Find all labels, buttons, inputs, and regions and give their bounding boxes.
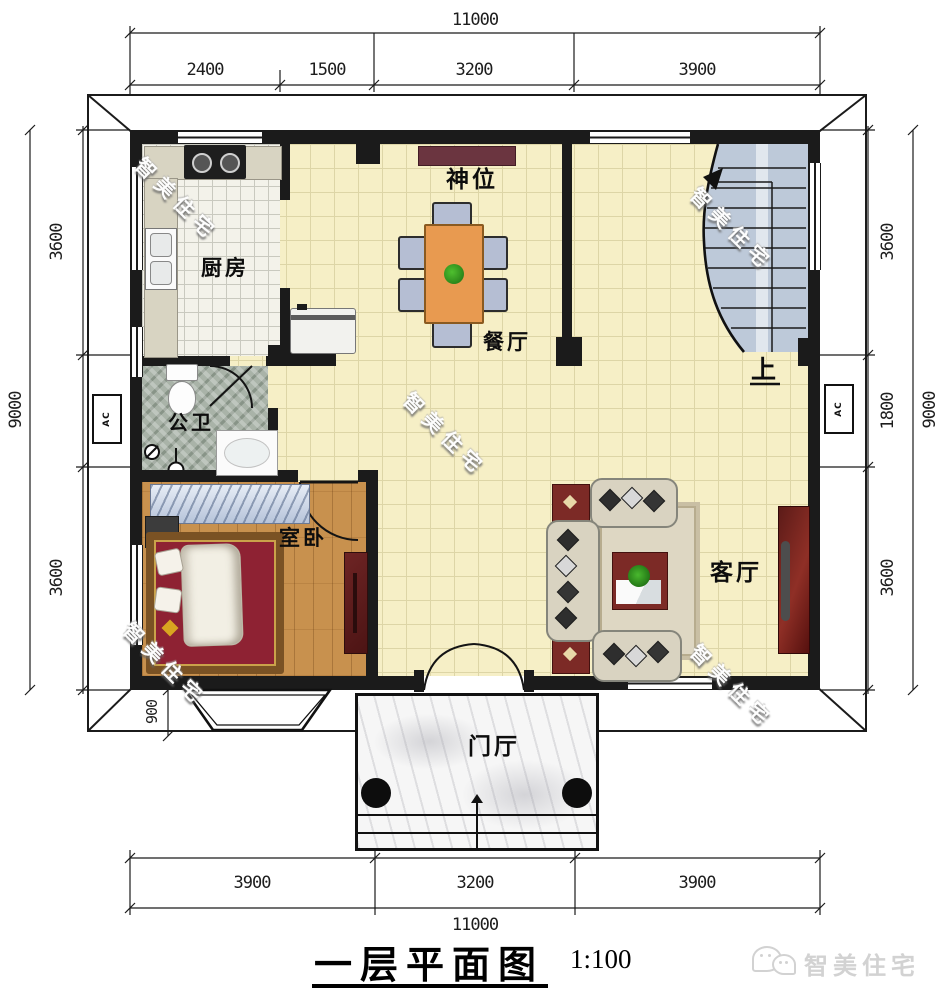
hall-cabinet-top-band	[291, 315, 355, 320]
bed-pillow-1	[154, 548, 184, 577]
dim-top-seg: 2400	[187, 60, 224, 80]
porch-column-right	[562, 778, 592, 808]
tv-icon	[781, 541, 790, 621]
door-post-right	[524, 670, 534, 692]
brand-logo: 智美住宅	[752, 942, 942, 984]
sofa-pillow	[599, 489, 622, 512]
dim-right-seg: 3600	[878, 224, 898, 261]
door-post-left	[414, 670, 424, 692]
ac-label: AC	[834, 401, 844, 417]
bed-pillow-2	[153, 586, 182, 613]
sofa-chaise-top	[590, 478, 678, 528]
kitchen-sink	[145, 228, 177, 290]
dim-left-seg: 3600	[47, 560, 67, 597]
sofa-left	[546, 520, 600, 642]
sofa-pillow	[557, 581, 580, 604]
wall-bedroom-top-b	[358, 470, 378, 482]
sofa-pillow	[555, 555, 578, 578]
title-underline	[312, 984, 548, 988]
coffee-table	[612, 552, 668, 610]
dim-left-total: 9000	[6, 392, 26, 429]
table-plant-icon	[444, 264, 464, 284]
column-hall	[556, 337, 582, 366]
ac-unit-left: AC	[92, 394, 122, 444]
sofa-pillow	[647, 641, 670, 664]
dim-bottom-total: 11000	[452, 915, 498, 935]
bed-gold-accent	[162, 620, 179, 637]
dim-top-seg: 3200	[456, 60, 493, 80]
sofa-pillow	[625, 645, 648, 668]
plan-scale: 1:100	[570, 944, 632, 975]
end-table-top	[552, 484, 590, 522]
window-stairs-right	[809, 163, 821, 270]
label-foyer: 门厅	[468, 727, 520, 761]
toilet-tank	[166, 364, 198, 381]
dining-table	[424, 224, 484, 324]
dim-right-total: 9000	[920, 392, 940, 429]
end-table-star-icon	[563, 647, 577, 661]
label-dining: 餐厅	[483, 326, 531, 356]
basin-bowl	[224, 438, 270, 468]
dim-top-seg: 3900	[679, 60, 716, 80]
dim-top-seg: 1500	[309, 60, 346, 80]
tv-cabinet	[778, 506, 810, 654]
burner-left-icon	[192, 153, 212, 173]
porch-column-left	[361, 778, 391, 808]
label-stairs-up: 上	[751, 350, 779, 386]
dim-bottom-seg: 3900	[679, 873, 716, 893]
label-kitchen: 厨房	[201, 252, 249, 282]
dim-right-seg: 1800	[878, 393, 898, 430]
label-bathroom: 公卫	[168, 407, 214, 436]
porch	[355, 693, 599, 851]
sofa-pillow	[643, 490, 666, 513]
dim-left-seg: 3600	[47, 224, 67, 261]
dim-top-total: 11000	[452, 10, 498, 30]
hall-cabinet	[290, 308, 356, 354]
sofa-pillow	[555, 607, 578, 630]
label-bedroom: 室卧	[279, 522, 327, 552]
wardrobe	[344, 552, 368, 654]
ac-unit-right: AC	[824, 384, 854, 434]
basin-counter	[216, 430, 278, 476]
floor-plan: AC AC 厨房 神位 餐厅 公卫 室卧 客厅 门厅 上 11000 2400 …	[0, 0, 952, 998]
porch-axis-line	[476, 801, 478, 848]
wechat-bubble-small-icon	[772, 954, 796, 975]
sink-bowl-2	[150, 261, 172, 285]
dim-bottom-seg: 3900	[234, 873, 271, 893]
sofa-pillow	[557, 529, 580, 552]
wardrobe-handle	[353, 573, 357, 633]
porch-axis-arrow-icon	[471, 794, 483, 803]
end-table-star-icon	[563, 495, 577, 509]
plan-title: 一层平面图	[314, 934, 544, 989]
window-hall-top	[590, 131, 690, 144]
sofa-bottom	[592, 630, 682, 682]
sink-bowl-1	[150, 233, 172, 257]
dim-bay-depth: 900	[143, 700, 161, 724]
dim-line-bay	[163, 685, 173, 741]
column-grid-top	[356, 144, 380, 164]
wall-dining-hall	[562, 144, 572, 337]
brand-name: 智美住宅	[804, 946, 920, 981]
coffee-table-plant-icon	[628, 565, 650, 587]
sofa-pillow	[603, 643, 626, 666]
stove	[184, 145, 246, 179]
label-shrine: 神位	[446, 160, 498, 194]
dim-right-seg: 3600	[878, 560, 898, 597]
column-stairs-end	[798, 338, 820, 366]
burner-right-icon	[220, 153, 240, 173]
window-bath-left	[131, 327, 143, 377]
window-kitchen-top	[178, 131, 262, 144]
dim-bottom-seg: 3200	[457, 873, 494, 893]
hall-cabinet-knob	[297, 304, 307, 310]
bed-blanket	[180, 543, 244, 647]
ac-label: AC	[102, 411, 112, 427]
sofa-pillow	[621, 487, 644, 510]
label-living: 客厅	[710, 553, 762, 587]
